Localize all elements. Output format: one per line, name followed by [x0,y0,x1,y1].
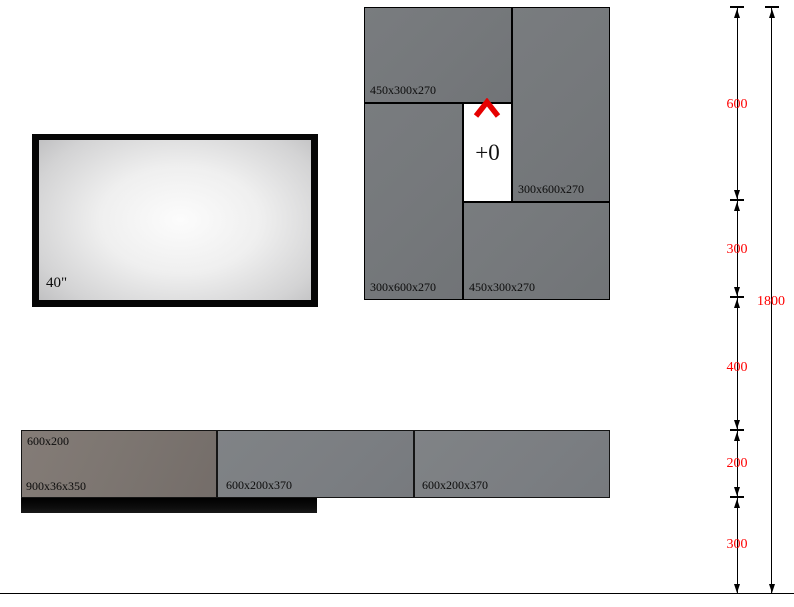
dim-segment-label: 300 [727,538,748,552]
arrow-up-icon [734,9,740,18]
arrow-down-icon [734,584,740,593]
tv-object[interactable]: 40" [32,134,318,307]
arrow-down-icon [734,190,740,199]
cabinet-dimension-label: 300x600x270 [518,182,584,197]
cabinet-dimension-label: 450x300x270 [469,280,535,295]
arrow-up-icon [734,299,740,308]
dim-total-label: 1800 [757,295,785,309]
floor-baseline [0,593,794,594]
cabinet-dimension-label: 300x600x270 [370,280,436,295]
dim-segment-label: 300 [727,243,748,257]
base-cabinet-middle[interactable]: 600x200x370 [217,430,414,498]
wall-cabinet-top-left[interactable]: 450x300x270 [364,7,512,103]
level-mark-label: +0 [475,140,499,166]
dim-tick [730,199,744,201]
arrow-up-icon [734,499,740,508]
dim-tick [730,429,744,431]
arrow-up-icon [769,9,775,18]
cabinet-dimension-label: 600x200x370 [226,478,292,493]
dim-segment-label: 400 [727,361,748,375]
wall-cabinet-top-right[interactable]: 300x600x270 [512,7,610,202]
dim-tick [765,6,779,8]
dim-segment-label: 200 [727,457,748,471]
dim-segment-label: 600 [727,98,748,112]
arrow-down-icon [734,487,740,496]
arrow-down-icon [734,287,740,296]
cabinet-dimension-label: 900x36x350 [26,479,86,494]
arrow-down-icon [769,584,775,593]
wall-cabinet-bottom-right[interactable]: 450x300x270 [463,202,610,300]
dim-tick [730,496,744,498]
dim-tick [730,296,744,298]
cabinet-dimension-label: 600x200x370 [422,478,488,493]
arrow-up-icon [734,432,740,441]
tv-size-label: 40" [46,275,67,292]
cabinet-dimension-label: 450x300x270 [370,83,436,98]
furniture-elevation-drawing: 40" 450x300x270 300x600x270 300x600x270 … [0,0,794,607]
tv-screen [39,140,311,300]
arrow-up-icon [734,202,740,211]
up-chevron-icon [472,98,502,119]
cabinet-dimension-label: 600x200 [27,434,69,449]
arrow-down-icon [734,420,740,429]
dim-tick [730,6,744,8]
base-cabinet-left[interactable]: 600x200 900x36x350 [21,430,217,498]
base-cabinet-right[interactable]: 600x200x370 [414,430,610,498]
wall-cabinet-bottom-left[interactable]: 300x600x270 [364,103,463,300]
base-plinth-shadow [21,498,317,513]
